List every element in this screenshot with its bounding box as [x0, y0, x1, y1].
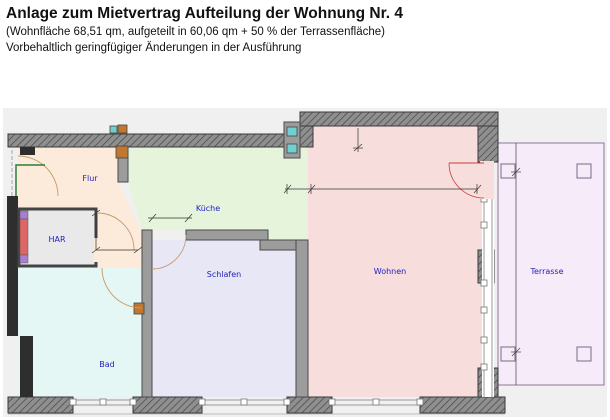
terrace-door-opening	[480, 161, 494, 199]
label-bad: Bad	[99, 360, 114, 369]
cyan-marker	[110, 126, 117, 133]
window-marker	[130, 399, 136, 405]
window-marker	[373, 399, 379, 405]
window-marker	[100, 399, 106, 405]
wall-bottom-3	[287, 397, 332, 413]
wall-bottom-1	[8, 397, 73, 413]
room-terrasse	[498, 143, 604, 385]
label-kueche: Küche	[196, 204, 220, 213]
label-wohnen: Wohnen	[374, 267, 406, 276]
window-marker	[481, 280, 487, 286]
page: Anlage zum Mietvertrag Aufteilung der Wo…	[0, 0, 610, 420]
window-marker	[481, 364, 487, 370]
room-schlafen	[152, 240, 296, 397]
orange-marker	[118, 125, 127, 133]
wall-schlafen-right	[296, 240, 308, 397]
label-schlafen: Schlafen	[207, 270, 241, 279]
label-har: HAR	[48, 235, 65, 244]
window-marker	[417, 399, 423, 405]
window-marker	[481, 337, 487, 343]
orange-marker	[116, 146, 128, 158]
room-kueche	[128, 147, 308, 240]
room-wohnen	[308, 126, 482, 397]
wall-top-left	[8, 134, 313, 147]
window-marker	[70, 399, 76, 405]
orange-marker	[134, 303, 144, 314]
shaft-marker-top	[20, 211, 28, 219]
window-marker	[481, 222, 487, 228]
label-terrasse: Terrasse	[529, 267, 563, 276]
window-marker	[329, 399, 335, 405]
window-marker	[241, 399, 247, 405]
cyan-marker	[287, 144, 297, 153]
window-marker	[284, 399, 290, 405]
cyan-marker	[287, 127, 297, 136]
wall-schlafen-top	[186, 230, 268, 240]
terrace-area	[498, 143, 604, 385]
room-bad	[18, 268, 142, 397]
window-marker	[481, 307, 487, 313]
label-flur: Flur	[82, 174, 98, 183]
wall-top-wohnen	[300, 112, 498, 126]
wall-bottom-2	[133, 397, 202, 413]
window-marker	[199, 399, 205, 405]
shaft-duct	[20, 219, 28, 255]
wall-bottom-4	[420, 397, 505, 413]
wall-pillar-right-top	[478, 126, 498, 162]
floor-plan: Flur Küche HAR Schlafen Bad Wohnen Terra…	[0, 0, 610, 420]
shaft-marker-bottom	[20, 255, 28, 263]
